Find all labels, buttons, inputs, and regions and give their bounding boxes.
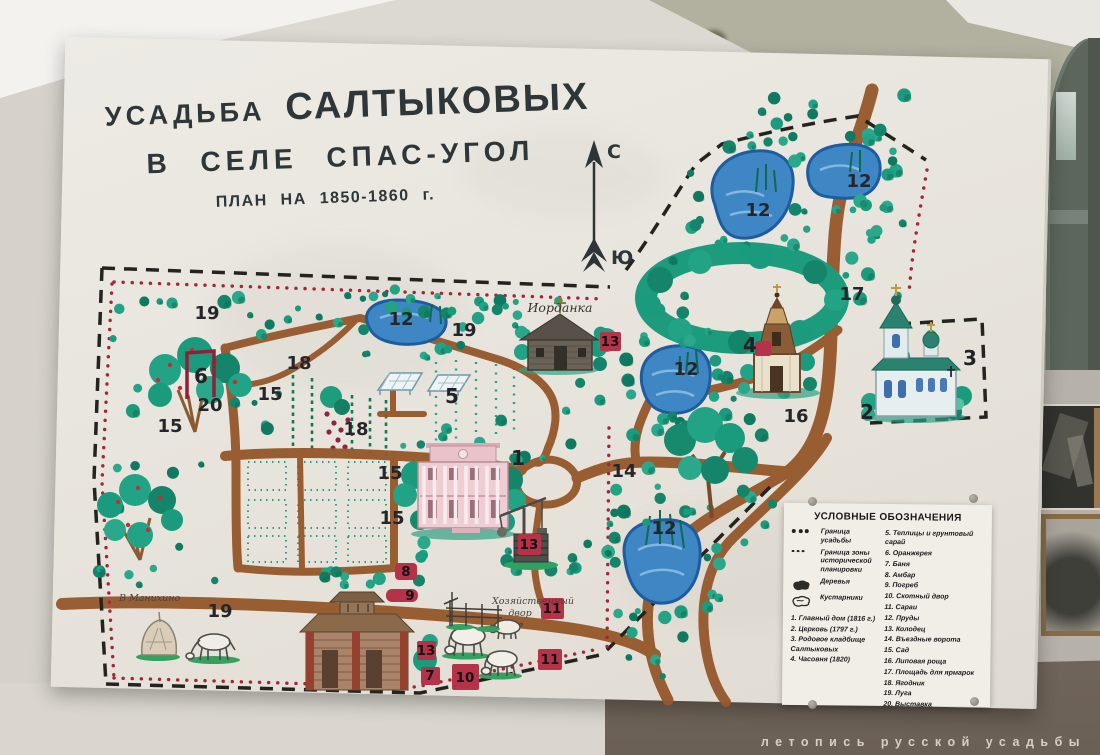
legend-row-shrubs: Кустарники <box>791 594 879 608</box>
legend-item-11: 11. Сараи <box>884 603 983 613</box>
legend-item-8: 8. Амбар <box>885 571 984 581</box>
legend-item-6: 6. Оранжерея <box>885 549 984 559</box>
legend-item-7: 7. Баня <box>885 560 984 570</box>
screw-bottom-left <box>808 700 817 709</box>
legend-item-4: 4. Часовня (1820) <box>790 655 878 665</box>
marker-13-south: 13 <box>417 643 436 659</box>
watermark: летопись русской усадьбы <box>761 735 1086 749</box>
legend-item-1: 1. Главный дом (1816 г.) <box>791 614 879 624</box>
label-3-cemetery: 3 <box>963 346 977 370</box>
label-12-east: 12 <box>673 359 698 380</box>
marker-8-ambar: 8 <box>401 564 410 580</box>
label-19-center: 19 <box>451 320 476 341</box>
legend-label-shrubs: Кустарники <box>820 594 863 603</box>
legend-item-9: 9. Погреб <box>885 581 984 591</box>
label-12-ne1: 12 <box>745 200 770 221</box>
label-2-church: 2 <box>860 400 874 424</box>
legend-item-19: 19. Луга <box>883 689 982 699</box>
label-19-south: 19 <box>207 601 232 622</box>
legend-label-trees: Деревья <box>820 578 850 587</box>
label-manikhino: В Манихино <box>118 593 181 604</box>
legend-item-18: 18. Ягодник <box>884 679 983 689</box>
label-17-fair: 17 <box>839 284 864 305</box>
screw-top-left <box>808 497 817 506</box>
legend-item-13: 13. Колодец <box>884 625 983 635</box>
label-12-nw: 12 <box>388 309 413 330</box>
label-12-ne2: 12 <box>846 171 871 192</box>
label-iordanka: Иорданка <box>527 300 593 315</box>
chapel-cross <box>773 284 781 293</box>
label-15-west: 15 <box>157 416 182 437</box>
compass-arrow <box>581 140 607 272</box>
apple-tree-south <box>97 474 183 560</box>
garden-plots <box>248 462 386 562</box>
label-khozdvor-1: Хозяйственный <box>491 596 574 607</box>
marker-11-south: 11 <box>541 652 560 668</box>
legend-item-2: 2. Церковь (1797 г.) <box>791 625 879 635</box>
screw-bottom-right <box>970 697 979 706</box>
chapel-red-marker <box>755 341 771 356</box>
label-6-orangery: 6 <box>194 364 208 388</box>
marker-10-skotny: 10 <box>456 670 475 686</box>
label-khozdvor-2: двор <box>508 608 531 619</box>
shrub-blob-icon <box>791 594 815 607</box>
legend-item-16: 16. Липовая роща <box>884 657 983 667</box>
label-14-gates: 14 <box>611 461 636 482</box>
label-1-main-house: 1 <box>511 446 525 470</box>
label-20-exhibition: 20 <box>197 395 222 416</box>
label-4-chapel: 4 <box>743 333 757 357</box>
legend-item-17: 17. Площадь для ярмарок <box>884 668 983 678</box>
label-19-nw: 19 <box>194 303 219 324</box>
church <box>861 284 972 423</box>
pond-ne-1 <box>712 151 793 238</box>
legend-title: УСЛОВНЫЕ ОБОЗНАЧЕНИЯ <box>792 511 984 524</box>
haystack <box>136 612 180 661</box>
cemetery-cross-icon: ✝ <box>945 363 958 381</box>
legend-item-14: 14. Въездные ворота <box>884 635 983 645</box>
legend-item-5: 5. Теплицы и грунтовый сарай <box>885 529 984 549</box>
legend-row-zone: Граница зоны исторической планировки <box>791 548 879 575</box>
legend-row-trees: Деревья <box>791 578 879 592</box>
legend-label-zone: Граница зоны исторической планировки <box>820 549 879 576</box>
label-18-south: 18 <box>343 419 368 440</box>
compass-south-label: Ю <box>611 247 633 269</box>
legend-item-12: 12. Пруды <box>884 614 983 624</box>
screw-top-right <box>969 494 978 503</box>
legend-item-10: 10. Скотный двор <box>884 592 983 602</box>
legend-item-15: 15. Сад <box>884 646 983 656</box>
boundary-dots-icon <box>792 528 816 533</box>
label-16-linden: 16 <box>783 406 808 427</box>
label-15-east1: 15 <box>377 463 402 484</box>
berry-rows <box>293 375 386 458</box>
label-15-east2: 15 <box>379 508 404 529</box>
label-5-greenhouse: 5 <box>445 384 459 408</box>
label-12-south: 12 <box>651 518 676 539</box>
horse <box>186 634 240 664</box>
marker-13-iordanka: 13 <box>601 334 620 350</box>
legend-label-boundary: Граница усадьбы <box>821 528 880 546</box>
marker-13-well: 13 <box>520 537 539 553</box>
legend-row-boundary: Граница усадьбы <box>792 528 880 546</box>
label-18-north: 18 <box>286 353 311 374</box>
boundary-dots-small-icon <box>792 548 816 552</box>
legend-item-3: 3. Родовое кладбище Салтыковых <box>790 635 878 655</box>
legend-item-20: 20. Выставка <box>883 700 982 710</box>
cow-grazing-1 <box>442 627 490 660</box>
label-15-mid: 15 <box>257 384 282 405</box>
compass-north-label: С <box>607 141 621 163</box>
tree-blob-icon <box>791 578 815 591</box>
marker-7-banya: 7 <box>425 668 434 684</box>
marker-9-pogreb: 9 <box>405 588 414 604</box>
legend-panel: УСЛОВНЫЕ ОБОЗНАЧЕНИЯ Граница усадьбы Гра… <box>782 503 992 707</box>
